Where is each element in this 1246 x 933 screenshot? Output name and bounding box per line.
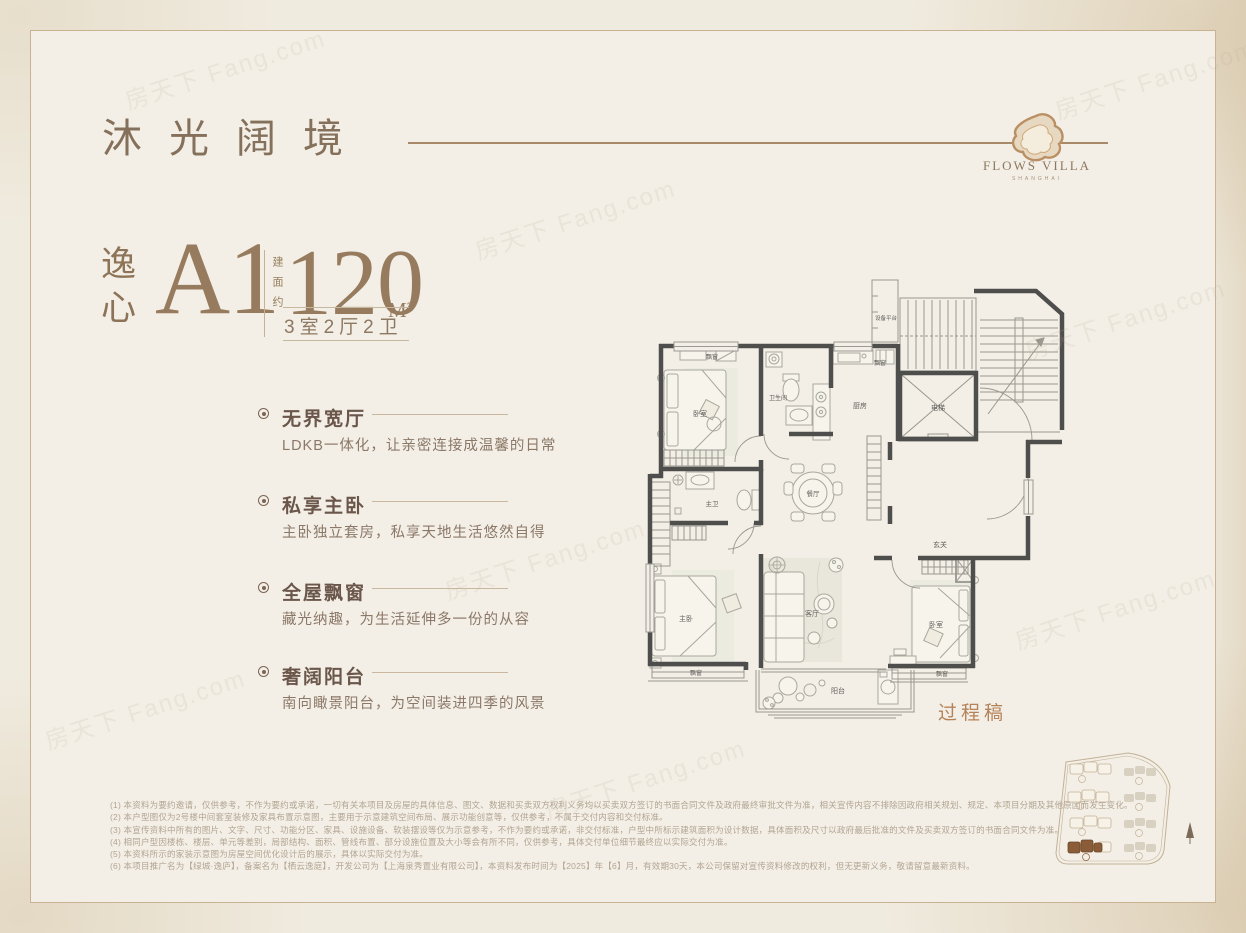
disclaimer-line: (6) 本项目推广名为【绿城·逸庐】，备案名为【栖云逸庭】，开发公司为【上海泉秀… bbox=[110, 860, 1150, 872]
bullet-icon bbox=[258, 495, 269, 506]
site-plan-map bbox=[1042, 746, 1202, 886]
spec-line-bottom bbox=[283, 340, 409, 341]
feature-desc: LDKB一体化，让亲密连接成温馨的日常 bbox=[282, 434, 542, 455]
disclaimer-line: (1) 本资料为要约邀请，仅供参考，不作为要约或承诺，一切有关本项目及房屋的具体… bbox=[110, 799, 1150, 811]
disclaimer-line: (3) 本宣传资料中所有的图片、文字、尺寸、功能分区、家具、设施设备、软装摆设等… bbox=[110, 824, 1150, 836]
logo-name: FLOWS VILLA bbox=[972, 158, 1102, 174]
room-label-master-bath: 主卫 bbox=[706, 499, 720, 508]
unit-code: A1 bbox=[155, 227, 278, 331]
room-label-baywindow-2: 飘窗 bbox=[874, 359, 886, 367]
feature-rule bbox=[372, 588, 508, 589]
disclaimer-line: (5) 本资料所示的家装示意图为房屋空间优化设计后的展示，具体以实际交付为准。 bbox=[110, 848, 1150, 860]
feature-title: 无界宽厅 bbox=[282, 404, 366, 431]
north-arrow-icon bbox=[1186, 822, 1194, 844]
feature-rule bbox=[372, 672, 508, 673]
feature-title: 奢阔阳台 bbox=[282, 662, 366, 689]
brand-title: 沐光阔境 bbox=[102, 106, 370, 164]
room-label-baywindow-4: 飘窗 bbox=[936, 670, 948, 678]
room-label-master-bedroom: 主卧 bbox=[679, 614, 693, 623]
disclaimer-line: (4) 相同户型因楼栋、楼层、单元等差别，局部结构、面积、管线布置、部分设施位置… bbox=[110, 836, 1150, 848]
spec-line-top bbox=[283, 307, 409, 308]
room-label-elevator: 电梯 bbox=[931, 403, 945, 412]
brochure-page: 沐光阔境 FLOWS VILLA SHANGHAI 逸心 A1 建面约 120 … bbox=[0, 0, 1246, 933]
rooms-summary: 3室2厅2卫 bbox=[284, 312, 403, 339]
highlighted-building bbox=[1068, 840, 1102, 853]
process-draft-note: 过程稿 bbox=[938, 698, 1007, 725]
room-label-dining: 餐厅 bbox=[807, 489, 821, 498]
room-label-bathroom: 卫生间 bbox=[769, 394, 787, 402]
room-label-bedroom-2: 卧室 bbox=[929, 620, 943, 629]
site-buildings bbox=[1068, 762, 1156, 861]
feature-desc: 主卧独立套房，私享天地生活悠然自得 bbox=[282, 521, 542, 542]
bullet-icon bbox=[258, 582, 269, 593]
feature-rule bbox=[372, 501, 508, 502]
room-label-living: 客厅 bbox=[805, 609, 819, 618]
feature-rule bbox=[372, 414, 508, 415]
feature-desc: 藏光纳趣，为生活延伸多一份的从容 bbox=[282, 608, 542, 629]
feature-desc: 南向瞰景阳台，为空间装进四季的风景 bbox=[282, 692, 542, 713]
bullet-icon bbox=[258, 666, 269, 677]
room-label-kitchen: 厨房 bbox=[853, 401, 867, 410]
logo-subtitle: SHANGHAI bbox=[972, 176, 1102, 182]
header-rule bbox=[408, 142, 1108, 144]
room-label-balcony: 阳台 bbox=[831, 686, 845, 695]
room-label-bedroom-1: 卧室 bbox=[693, 409, 707, 418]
disclaimer-line: (2) 本户型图仅为2号楼中间套室装修及家具布置示意图，主要用于示意建筑空间布局… bbox=[110, 811, 1150, 823]
disclaimer-block: (1) 本资料为要约邀请，仅供参考，不作为要约或承诺，一切有关本项目及房屋的具体… bbox=[110, 799, 1150, 873]
bullet-icon bbox=[258, 408, 269, 419]
floorplan-drawing: 卧室 飘窗 卫生间 厨房 飘窗 设备平台 电梯 餐厅 主卫 玄关 主卧 客厅 卧… bbox=[628, 266, 1108, 746]
room-label-foyer: 玄关 bbox=[933, 540, 947, 549]
room-label-baywindow-1: 飘窗 bbox=[706, 353, 718, 361]
room-label-baywindow-3: 飘窗 bbox=[690, 669, 702, 677]
feature-title: 全屋飘窗 bbox=[282, 578, 366, 605]
unit-divider bbox=[264, 250, 265, 337]
feature-title: 私享主卧 bbox=[282, 491, 366, 518]
room-label-equipment-platform: 设备平台 bbox=[875, 314, 898, 322]
unit-series-name: 逸心 bbox=[101, 243, 141, 331]
